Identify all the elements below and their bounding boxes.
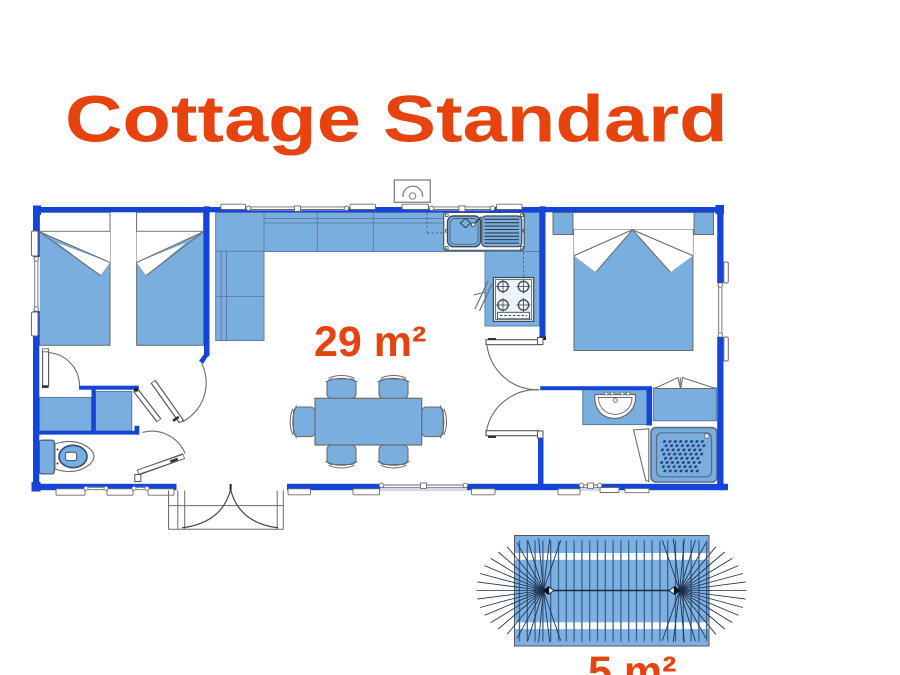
svg-text:Cottage Standard: Cottage Standard [65, 83, 728, 156]
svg-text:5 m²: 5 m² [588, 648, 676, 675]
svg-text:29 m²: 29 m² [314, 318, 426, 366]
